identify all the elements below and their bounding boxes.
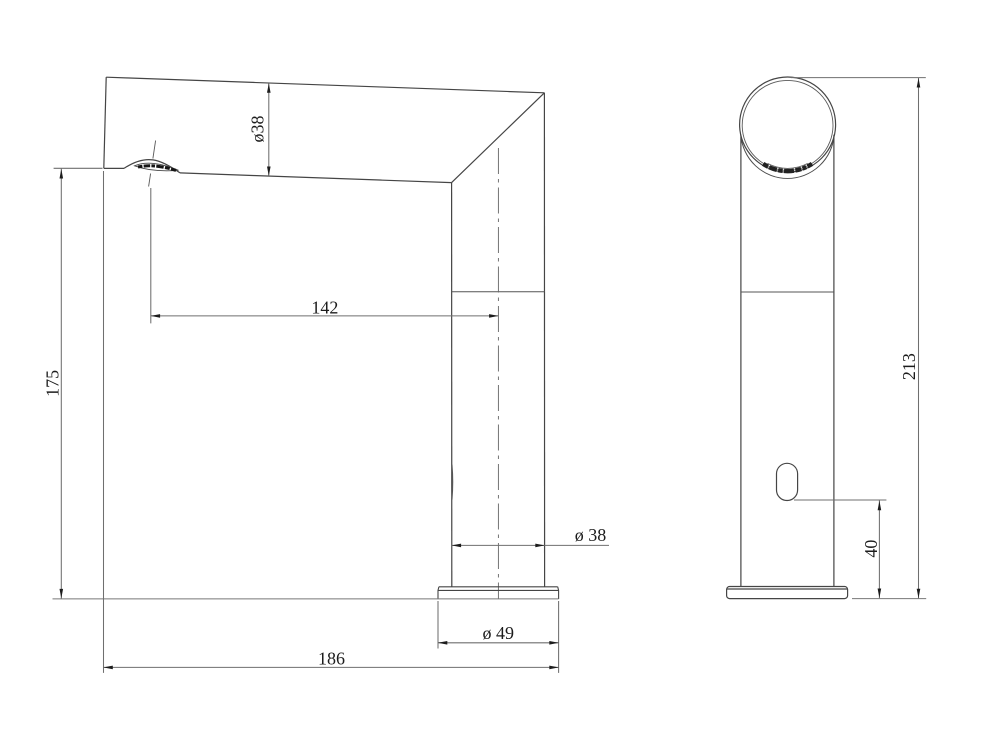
svg-text:ø 38: ø 38 [575, 525, 607, 545]
svg-text:213: 213 [899, 353, 919, 380]
svg-text:186: 186 [318, 648, 345, 668]
svg-text:175: 175 [43, 370, 63, 397]
svg-text:ø 49: ø 49 [482, 623, 514, 643]
svg-text:40: 40 [861, 540, 881, 558]
svg-text:142: 142 [311, 297, 338, 317]
svg-text:ø38: ø38 [248, 116, 268, 143]
